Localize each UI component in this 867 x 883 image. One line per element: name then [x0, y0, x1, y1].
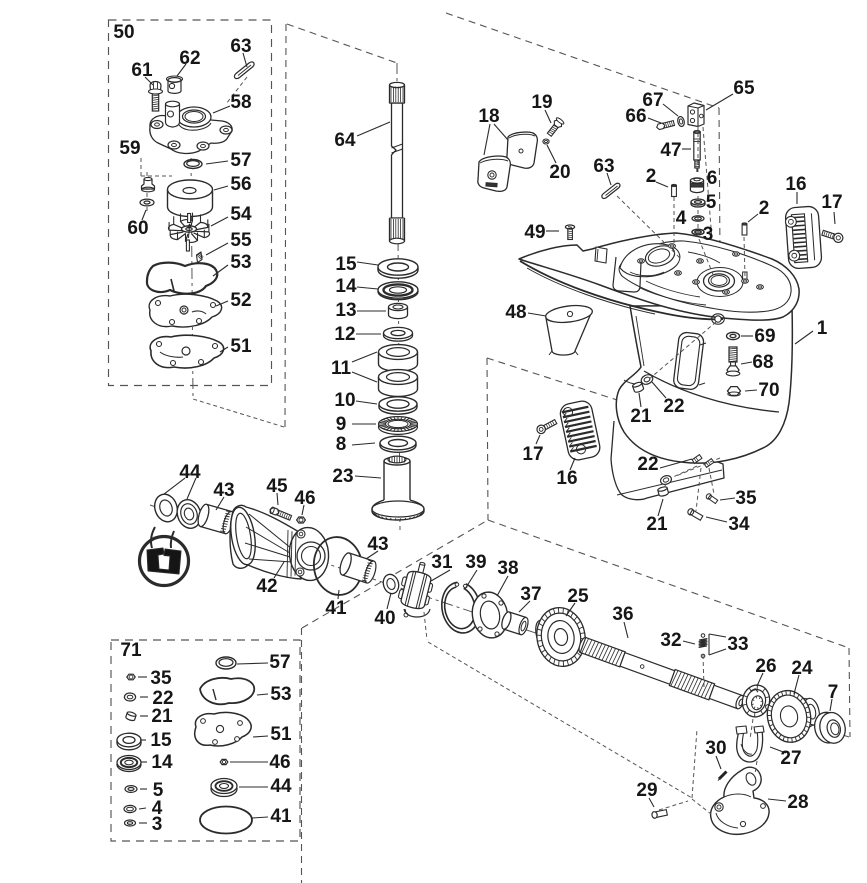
svg-text:17: 17	[821, 192, 842, 213]
svg-text:4: 4	[676, 208, 687, 229]
svg-text:50: 50	[113, 22, 134, 43]
svg-text:34: 34	[728, 514, 750, 535]
svg-text:49: 49	[524, 222, 545, 243]
svg-text:10: 10	[334, 390, 355, 411]
svg-text:35: 35	[735, 488, 757, 509]
svg-text:64: 64	[334, 130, 356, 151]
svg-text:13: 13	[335, 300, 356, 321]
svg-text:43: 43	[213, 480, 234, 501]
svg-text:33: 33	[727, 634, 748, 655]
svg-text:12: 12	[334, 324, 355, 345]
svg-text:41: 41	[270, 806, 292, 827]
svg-text:3: 3	[703, 224, 714, 245]
svg-text:32: 32	[660, 630, 681, 651]
svg-text:24: 24	[791, 658, 813, 679]
svg-text:51: 51	[270, 724, 292, 745]
svg-text:15: 15	[150, 730, 172, 751]
svg-text:14: 14	[151, 752, 173, 773]
svg-text:8: 8	[336, 434, 347, 455]
svg-text:59: 59	[119, 138, 140, 159]
svg-text:21: 21	[151, 706, 173, 727]
svg-text:53: 53	[230, 252, 251, 273]
svg-text:63: 63	[593, 156, 614, 177]
svg-text:47: 47	[660, 140, 681, 161]
svg-text:58: 58	[230, 92, 251, 113]
svg-text:2: 2	[759, 198, 770, 219]
svg-text:31: 31	[431, 552, 453, 573]
svg-text:27: 27	[780, 748, 801, 769]
svg-text:42: 42	[256, 576, 277, 597]
svg-text:21: 21	[646, 514, 668, 535]
svg-text:9: 9	[336, 414, 347, 435]
svg-text:56: 56	[230, 174, 251, 195]
svg-text:21: 21	[630, 406, 652, 427]
svg-text:28: 28	[787, 792, 808, 813]
svg-text:23: 23	[332, 466, 353, 487]
svg-text:44: 44	[270, 776, 292, 797]
svg-text:70: 70	[758, 380, 779, 401]
svg-text:46: 46	[294, 488, 315, 509]
svg-text:18: 18	[478, 106, 499, 127]
svg-text:48: 48	[505, 302, 526, 323]
svg-text:35: 35	[150, 668, 172, 689]
svg-text:57: 57	[269, 652, 290, 673]
svg-text:60: 60	[127, 218, 148, 239]
svg-text:20: 20	[549, 162, 570, 183]
svg-text:3: 3	[152, 814, 163, 835]
svg-text:63: 63	[230, 36, 251, 57]
svg-text:2: 2	[646, 166, 657, 187]
svg-text:36: 36	[612, 604, 633, 625]
svg-text:45: 45	[266, 476, 288, 497]
svg-text:1: 1	[817, 318, 828, 339]
svg-text:67: 67	[642, 90, 663, 111]
svg-text:7: 7	[828, 682, 839, 703]
svg-text:69: 69	[754, 326, 775, 347]
svg-text:5: 5	[706, 192, 717, 213]
svg-text:16: 16	[556, 468, 577, 489]
svg-text:71: 71	[120, 640, 142, 661]
svg-text:43: 43	[367, 534, 388, 555]
svg-text:6: 6	[707, 168, 718, 189]
svg-text:26: 26	[755, 656, 776, 677]
svg-text:54: 54	[230, 204, 252, 225]
svg-text:41: 41	[325, 598, 347, 619]
svg-text:51: 51	[230, 336, 252, 357]
svg-text:61: 61	[131, 60, 153, 81]
svg-text:65: 65	[733, 78, 755, 99]
svg-text:39: 39	[465, 552, 486, 573]
svg-text:62: 62	[179, 48, 200, 69]
svg-text:16: 16	[785, 174, 806, 195]
svg-text:14: 14	[335, 276, 357, 297]
svg-text:53: 53	[270, 684, 291, 705]
svg-text:11: 11	[331, 358, 352, 379]
svg-text:37: 37	[520, 584, 541, 605]
svg-text:30: 30	[705, 738, 726, 759]
svg-text:29: 29	[636, 780, 657, 801]
svg-text:46: 46	[269, 752, 290, 773]
svg-text:22: 22	[637, 454, 658, 475]
svg-text:55: 55	[230, 230, 252, 251]
svg-text:15: 15	[335, 254, 357, 275]
svg-text:25: 25	[567, 586, 589, 607]
svg-text:17: 17	[522, 444, 543, 465]
svg-text:38: 38	[497, 558, 518, 579]
svg-text:40: 40	[374, 608, 395, 629]
svg-text:19: 19	[531, 92, 552, 113]
svg-text:22: 22	[663, 396, 684, 417]
svg-text:68: 68	[752, 352, 773, 373]
svg-text:44: 44	[179, 462, 201, 483]
svg-text:57: 57	[230, 150, 251, 171]
svg-text:52: 52	[230, 290, 251, 311]
